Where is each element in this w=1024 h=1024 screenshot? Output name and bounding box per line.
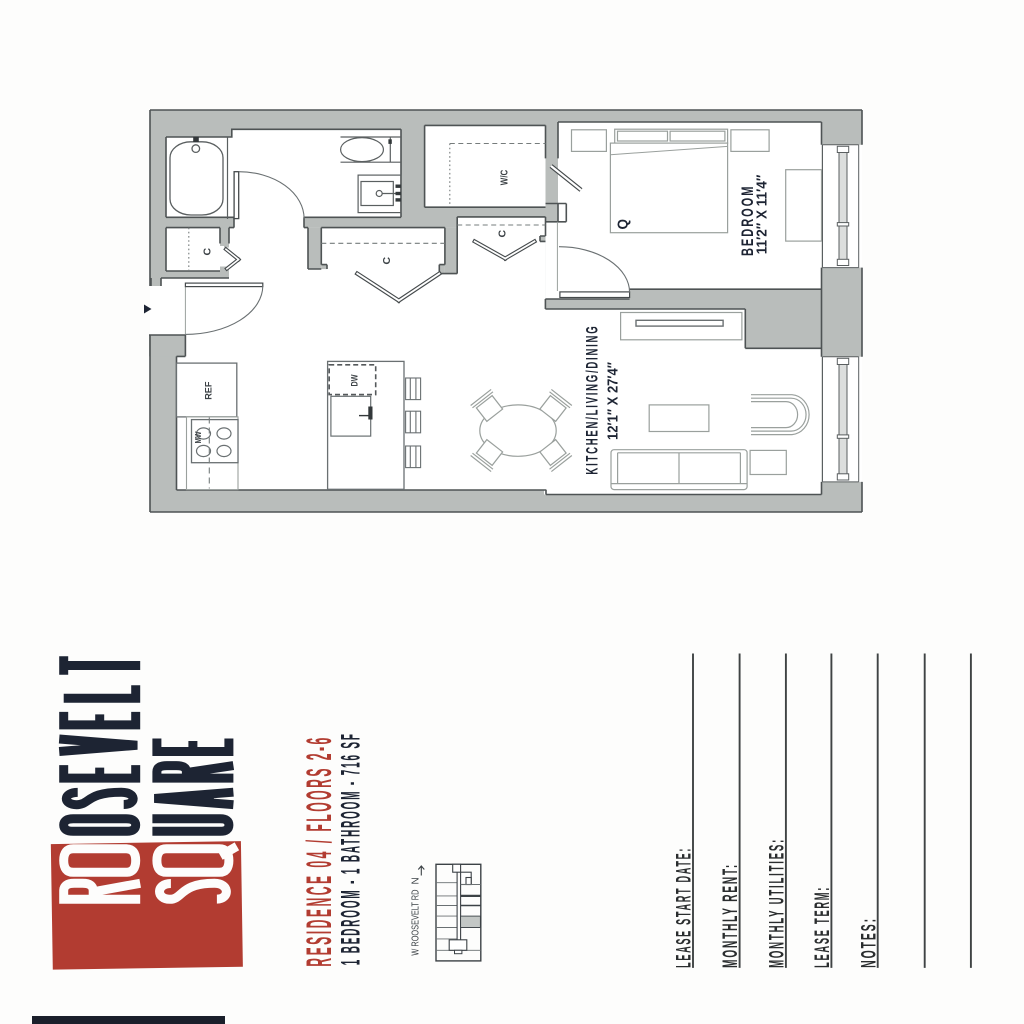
svg-text:1 BEDROOM - 1 BATHROOM - 716 S: 1 BEDROOM - 1 BATHROOM - 716 SF xyxy=(336,732,366,965)
svg-text:C: C xyxy=(497,230,509,238)
svg-text:DW: DW xyxy=(350,374,360,386)
svg-text:KITCHEN/LIVING/DINING: KITCHEN/LIVING/DINING xyxy=(584,325,602,475)
svg-text:W ROOSEVELT RD: W ROOSEVELT RD xyxy=(410,890,421,956)
svg-text:RESIDENCE 04 / FLOORS 2-6: RESIDENCE 04 / FLOORS 2-6 xyxy=(300,735,339,967)
svg-text:11′2″ X 11′4″: 11′2″ X 11′4″ xyxy=(754,175,771,255)
svg-text:MW: MW xyxy=(193,431,203,444)
svg-text:NOTES:: NOTES: xyxy=(856,917,880,968)
svg-text:REF: REF xyxy=(203,381,213,400)
svg-text:MONTHLY UTILITIES:: MONTHLY UTILITIES: xyxy=(765,838,789,968)
svg-text:12′1″ X 27′4″: 12′1″ X 27′4″ xyxy=(605,362,622,440)
svg-text:Q: Q xyxy=(616,219,632,230)
svg-text:MONTHLY RENT:: MONTHLY RENT: xyxy=(718,863,742,968)
svg-text:N: N xyxy=(410,877,421,884)
svg-text:LEASE TERM:: LEASE TERM: xyxy=(810,886,834,968)
svg-text:W/C: W/C xyxy=(500,170,511,186)
svg-text:C: C xyxy=(381,257,393,265)
svg-text:C: C xyxy=(201,248,213,256)
svg-text:LEASE START DATE:: LEASE START DATE: xyxy=(672,847,696,968)
